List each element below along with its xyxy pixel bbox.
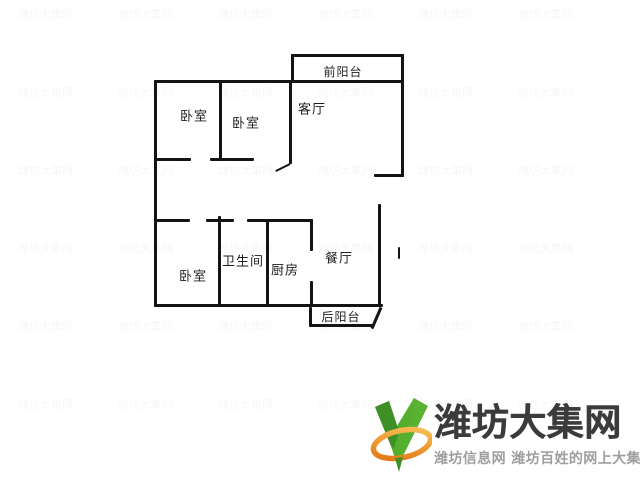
bathroom-left-wall — [218, 216, 221, 307]
back-balcony-bottom-wall — [309, 324, 374, 327]
back-balcony-label: 后阳台 — [321, 311, 360, 323]
dining-room-label: 餐厅 — [325, 253, 353, 266]
bottom-outer-wall — [154, 304, 383, 307]
top-outer-wall — [154, 80, 404, 83]
living-room-label: 客厅 — [298, 104, 326, 117]
hall-wall-left — [154, 158, 191, 161]
living-room-left-wall — [289, 80, 292, 164]
kitchen-right-wall-upper — [310, 219, 313, 251]
floorplan-screenshot: 潍坊大集网潍坊大集网潍坊大集网潍坊大集网潍坊大集网潍坊大集网潍坊大集网潍坊大集网… — [0, 0, 640, 487]
bedroom-bottom-left-label: 卧室 — [179, 271, 207, 284]
lower-top-wall-left — [154, 219, 190, 222]
front-balcony-left-wall — [291, 54, 294, 83]
left-outer-wall — [154, 80, 157, 307]
living-room-door-leaf — [276, 163, 291, 172]
living-room-bottom-wall — [374, 174, 404, 177]
dining-right-wall — [378, 204, 381, 307]
logo-title: 潍坊大集网 — [434, 404, 630, 441]
front-balcony-label: 前阳台 — [323, 66, 362, 78]
right-outer-wall-upper — [401, 54, 404, 177]
kitchen-label: 厨房 — [271, 265, 299, 278]
logo-tagline: 潍坊信息网 潍坊百姓的网上大集 — [434, 448, 630, 468]
kitchen-left-wall — [266, 220, 269, 307]
bedroom-top-mid-label: 卧室 — [232, 118, 260, 131]
logo-text: 潍坊大集网 潍坊信息网 潍坊百姓的网上大集 — [434, 404, 630, 468]
bathroom-label: 卫生间 — [222, 256, 264, 269]
hall-wall-mid — [210, 158, 254, 161]
door-mark — [398, 247, 400, 259]
site-logo: 潍坊大集网 潍坊信息网 潍坊百姓的网上大集 — [362, 394, 632, 484]
bedrooms-divider-wall — [219, 80, 222, 161]
checkmark-logo-icon — [366, 396, 432, 480]
bedroom-top-left-label: 卧室 — [180, 111, 208, 124]
back-balcony-right-wall — [371, 307, 383, 329]
front-balcony-top-wall — [291, 54, 404, 57]
lower-top-wall-right — [247, 219, 313, 222]
